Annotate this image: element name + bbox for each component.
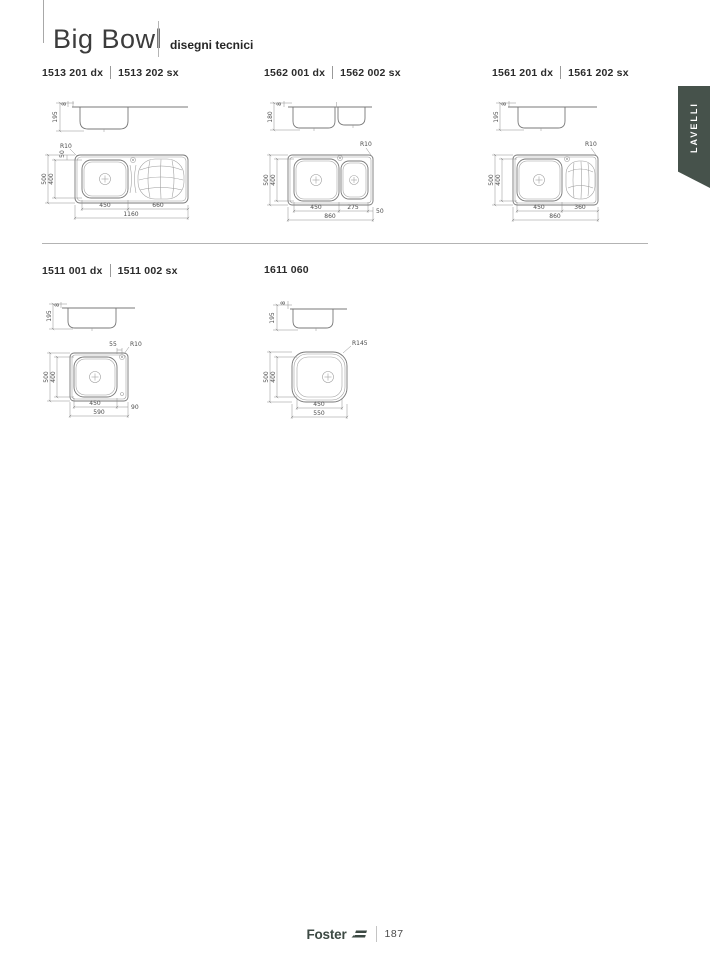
dim-depth: 195 bbox=[52, 111, 59, 123]
section-tab-lavelli: LAVELLI bbox=[678, 86, 710, 188]
dim-rim: 8 bbox=[501, 102, 508, 106]
dim-a: 450 bbox=[310, 204, 322, 211]
dim-a: 450 bbox=[533, 204, 545, 211]
dim-outer-h: 500 bbox=[263, 371, 270, 383]
dim-inner-h: 400 bbox=[48, 173, 55, 185]
technical-drawing-1513: 195 8 R10 50 bbox=[40, 92, 240, 242]
dim-a: 450 bbox=[313, 401, 325, 408]
dim-outer-h: 500 bbox=[488, 174, 495, 186]
row-separator bbox=[42, 243, 648, 244]
dim-rim: 8 bbox=[61, 102, 68, 106]
section-tab-label: LAVELLI bbox=[678, 86, 710, 188]
dim-depth: 180 bbox=[267, 111, 274, 123]
dim-c: 50 bbox=[376, 208, 384, 215]
dim-b: 660 bbox=[152, 202, 164, 209]
side-view: 180 8 bbox=[267, 101, 372, 131]
dim-a: 450 bbox=[99, 202, 111, 209]
technical-drawing-1562: 180 8 R10 500 bbox=[262, 92, 462, 242]
model-code-divider bbox=[332, 66, 333, 79]
side-view: 195 8 bbox=[269, 301, 347, 331]
side-view: 195 8 bbox=[52, 101, 188, 132]
dim-inner-h: 400 bbox=[270, 174, 277, 186]
plan-view bbox=[513, 155, 598, 205]
dim-total: 860 bbox=[549, 213, 561, 220]
model-codes-1511: 1511 001 dx 1511 002 sx bbox=[42, 264, 178, 277]
dim-outer-h: 500 bbox=[43, 371, 50, 383]
model-codes-1513: 1513 201 dx 1513 202 sx bbox=[42, 66, 179, 79]
model-code: 1513 202 sx bbox=[118, 67, 179, 79]
plan-view bbox=[292, 352, 347, 402]
dim-outer-h: 500 bbox=[41, 173, 48, 185]
dim-depth: 195 bbox=[269, 312, 276, 324]
model-code: 1562 001 dx bbox=[264, 67, 325, 79]
plan-dimensions: R10 500 400 450 275 50 860 bbox=[263, 141, 384, 222]
plan-view bbox=[70, 353, 128, 401]
dim-a: 450 bbox=[89, 400, 101, 407]
technical-drawing-1611: 195 8 R145 500 400 450 bbox=[262, 292, 437, 432]
brand-bars-icon bbox=[351, 930, 368, 939]
dim-rim: 8 bbox=[276, 102, 283, 106]
model-code: 1561 202 sx bbox=[568, 67, 629, 79]
dim-outer-h: 500 bbox=[263, 174, 270, 186]
model-codes-1562: 1562 001 dx 1562 002 sx bbox=[264, 66, 401, 79]
title-divider bbox=[158, 21, 159, 57]
dim-depth: 195 bbox=[493, 111, 500, 123]
page-subtitle: disegni tecnici bbox=[170, 38, 253, 52]
dim-radius: R10 bbox=[585, 141, 597, 148]
dim-total: 860 bbox=[324, 213, 336, 220]
model-code-divider bbox=[560, 66, 561, 79]
dim-total: 550 bbox=[313, 410, 325, 417]
dim-total: 590 bbox=[93, 409, 105, 416]
model-codes-1561: 1561 201 dx 1561 202 sx bbox=[492, 66, 629, 79]
page-number: 187 bbox=[385, 928, 404, 940]
plan-view bbox=[288, 155, 373, 205]
model-code: 1561 201 dx bbox=[492, 67, 553, 79]
catalog-page: Big Bowl disegni tecnici LAVELLI 1513 20… bbox=[0, 0, 710, 958]
model-code: 1513 201 dx bbox=[42, 67, 103, 79]
dim-edge-top: 55 bbox=[109, 341, 117, 348]
dim-radius: R10 bbox=[60, 143, 72, 150]
title-left-rule bbox=[43, 0, 44, 43]
dim-depth: 195 bbox=[46, 310, 53, 322]
model-code: 1611 060 bbox=[264, 264, 309, 276]
model-code: 1562 002 sx bbox=[340, 67, 401, 79]
dim-b: 90 bbox=[131, 404, 139, 411]
dim-b: 275 bbox=[347, 204, 359, 211]
dim-radius: R145 bbox=[352, 340, 368, 347]
dim-rim: 8 bbox=[54, 303, 61, 307]
dim-rim: 8 bbox=[280, 301, 287, 305]
dim-radius: R10 bbox=[360, 141, 372, 148]
model-codes-1611: 1611 060 bbox=[264, 264, 309, 276]
plan-dimensions: 55 R10 500 400 450 90 590 bbox=[43, 341, 142, 418]
model-code: 1511 001 dx bbox=[42, 265, 103, 277]
model-code: 1511 002 sx bbox=[118, 265, 178, 277]
dim-radius: R10 bbox=[130, 341, 142, 348]
model-code-divider bbox=[110, 264, 111, 277]
side-view: 195 8 bbox=[493, 101, 597, 131]
dim-inner-h: 400 bbox=[270, 371, 277, 383]
technical-drawing-1511: 195 8 55 R10 500 bbox=[40, 292, 215, 432]
footer-divider bbox=[376, 926, 377, 942]
dim-total: 1160 bbox=[123, 211, 138, 218]
page-footer: Foster 187 bbox=[0, 926, 710, 942]
brand-logo: Foster bbox=[306, 927, 346, 942]
dim-inner-h: 400 bbox=[50, 371, 57, 383]
dim-edge-top: 50 bbox=[59, 150, 66, 158]
technical-drawing-1561: 195 8 R10 bbox=[490, 92, 690, 242]
page-title: Big Bowl bbox=[53, 24, 162, 55]
plan-view bbox=[75, 155, 188, 203]
dim-b: 360 bbox=[574, 204, 586, 211]
model-code-divider bbox=[110, 66, 111, 79]
dim-inner-h: 400 bbox=[495, 174, 502, 186]
side-view: 195 8 bbox=[46, 302, 135, 331]
